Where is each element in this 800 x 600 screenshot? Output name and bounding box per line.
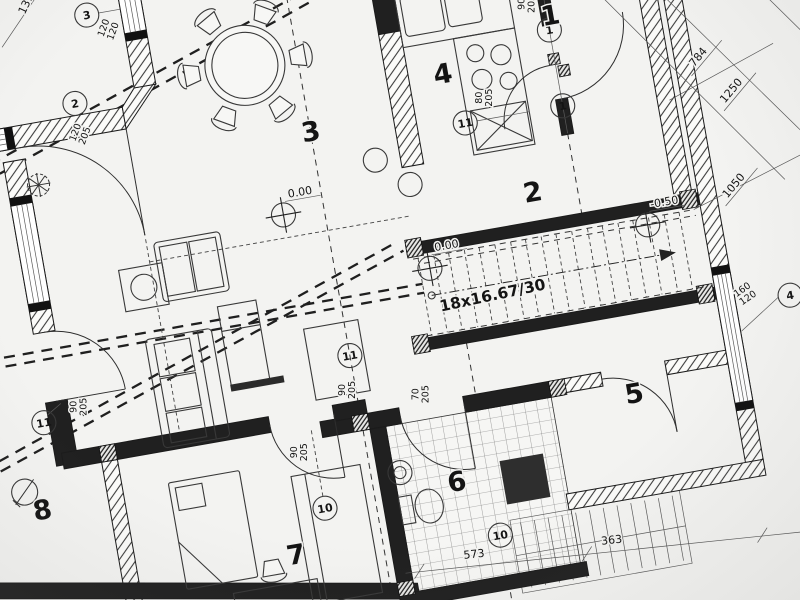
dim-text: 363 [601,533,623,548]
marker-number: 11 [457,116,474,131]
marker-number: 10 [316,501,334,517]
floor-plan-drawing: 0.00 0.00 -0.50 3 2 1 1 11 11 11 10 10 4 [0,0,800,600]
marker-number: 11 [35,415,52,430]
marker-number: 10 [492,528,510,544]
blueprint-photo: 0.00 0.00 -0.50 3 2 1 1 11 11 11 10 10 4 [0,0,800,600]
dim-text: 573 [463,547,485,562]
shower-base [499,454,550,505]
marker-number: 11 [341,348,358,363]
bathroom-tile-floor [386,397,581,592]
